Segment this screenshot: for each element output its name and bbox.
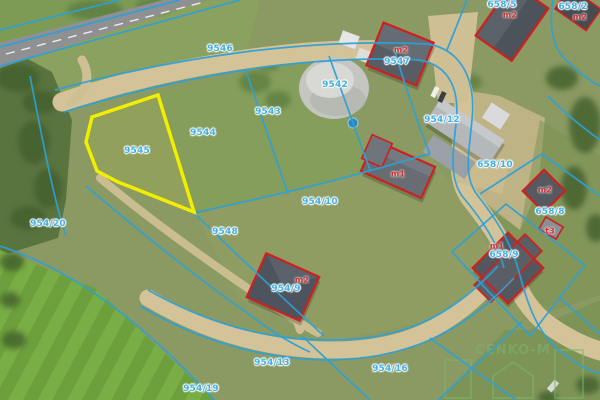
parcel-label-954-9[interactable]: 954/9: [271, 284, 300, 294]
parcel-label-954-10[interactable]: 954/10: [302, 197, 338, 207]
parcel-label-9547[interactable]: 9547: [384, 57, 410, 67]
parcel-label-9544[interactable]: 9544: [190, 128, 216, 138]
parcel-label-9543[interactable]: 9543: [255, 107, 281, 117]
parcel-label-954-19[interactable]: 954/19: [183, 384, 219, 394]
map-labels-layer: 954695429547658/5658/2954395449545954/12…: [0, 0, 600, 400]
parcel-label-954-12[interactable]: 954/12: [424, 115, 460, 125]
parcel-label-9545[interactable]: 9545: [124, 146, 150, 156]
parcel-label-658-9[interactable]: 658/9: [489, 250, 518, 260]
parcel-label-658-5[interactable]: 658/5: [487, 0, 516, 10]
building-label-t3: t3: [545, 227, 555, 236]
building-label-m2: m2: [503, 11, 517, 20]
parcel-label-954-13[interactable]: 954/13: [254, 358, 290, 368]
building-label-m2: m2: [573, 13, 587, 22]
building-label-m2: m2: [538, 186, 552, 195]
parcel-label-658-10[interactable]: 658/10: [477, 160, 513, 170]
parcel-label-954-16[interactable]: 954/16: [372, 364, 408, 374]
building-label-m1: m1: [490, 242, 504, 251]
parcel-label-954-20[interactable]: 954/20: [30, 219, 66, 229]
parcel-label-9546[interactable]: 9546: [207, 44, 233, 54]
parcel-label-9542[interactable]: 9542: [322, 80, 348, 90]
parcel-label-9548[interactable]: 9548: [212, 227, 238, 237]
building-label-m1: m1: [391, 170, 405, 179]
building-label-m2: m2: [295, 276, 309, 285]
parcel-label-658-2[interactable]: 658/2: [558, 2, 587, 12]
parcel-label-658-8[interactable]: 658/8: [535, 207, 564, 217]
building-label-m2: m2: [394, 46, 408, 55]
map-viewport[interactable]: CENKO-M 954695429547658/5658/29543954495…: [0, 0, 600, 400]
